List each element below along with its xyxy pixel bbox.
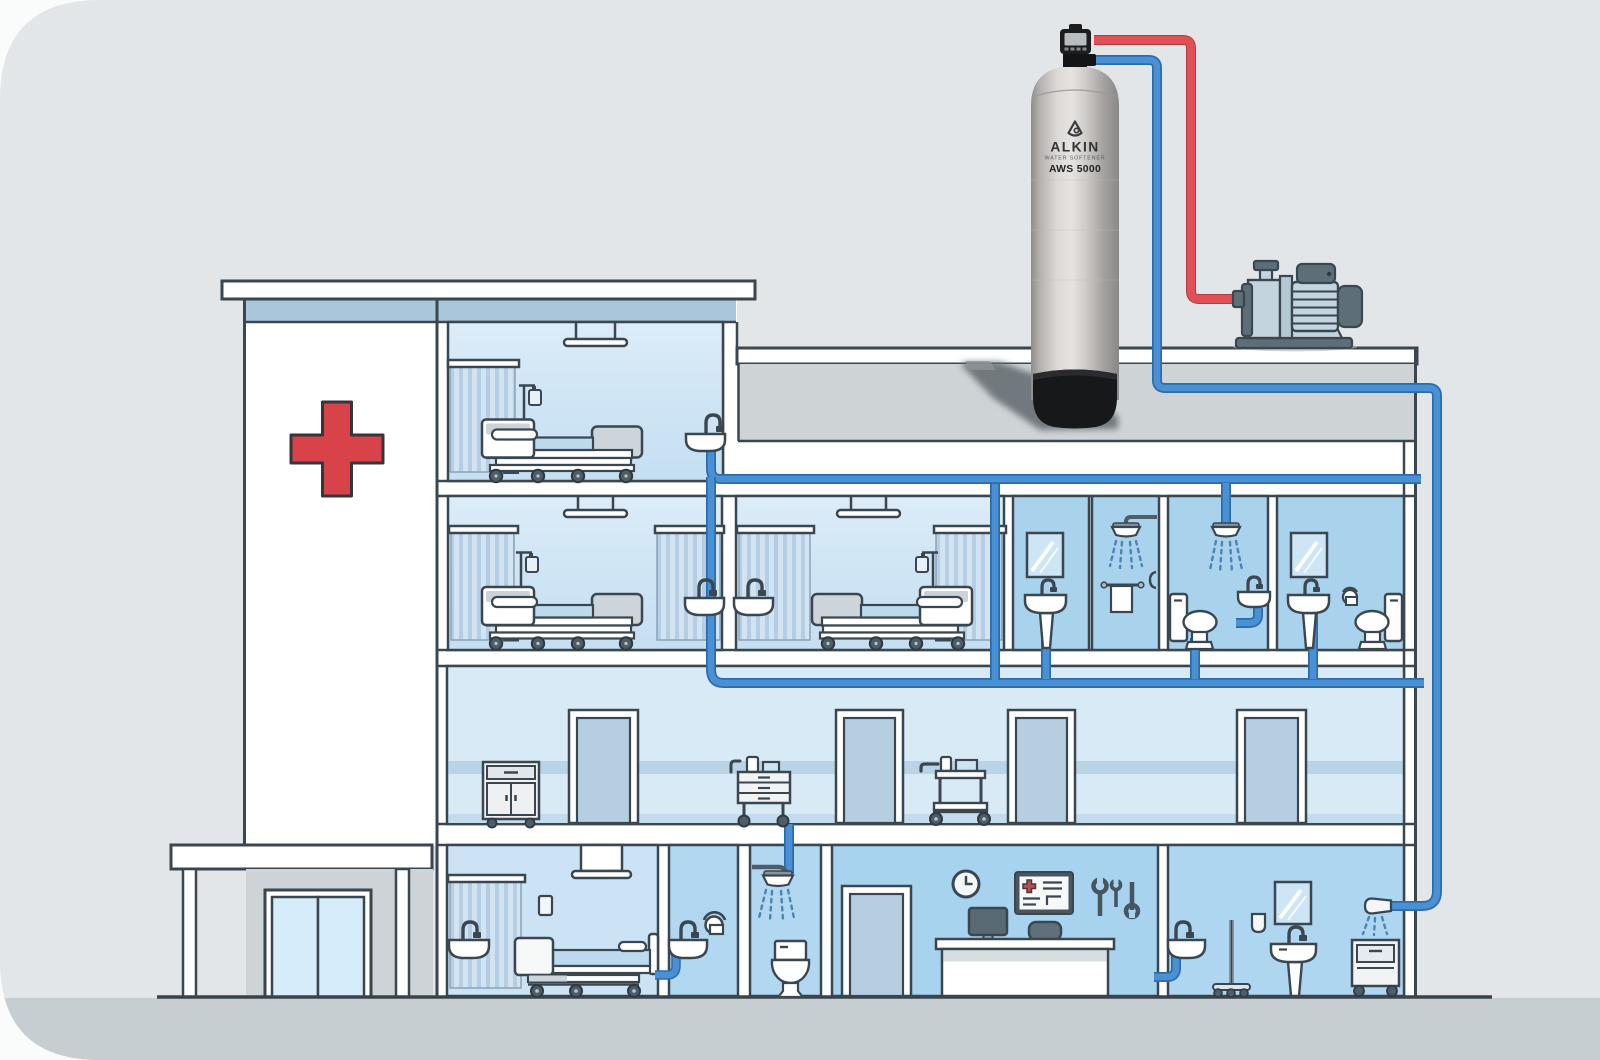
svg-text:WATER SOFTENER: WATER SOFTENER	[1045, 156, 1106, 162]
svg-text:ALKIN: ALKIN	[1050, 140, 1099, 155]
svg-text:AWS 5000: AWS 5000	[1049, 164, 1101, 175]
